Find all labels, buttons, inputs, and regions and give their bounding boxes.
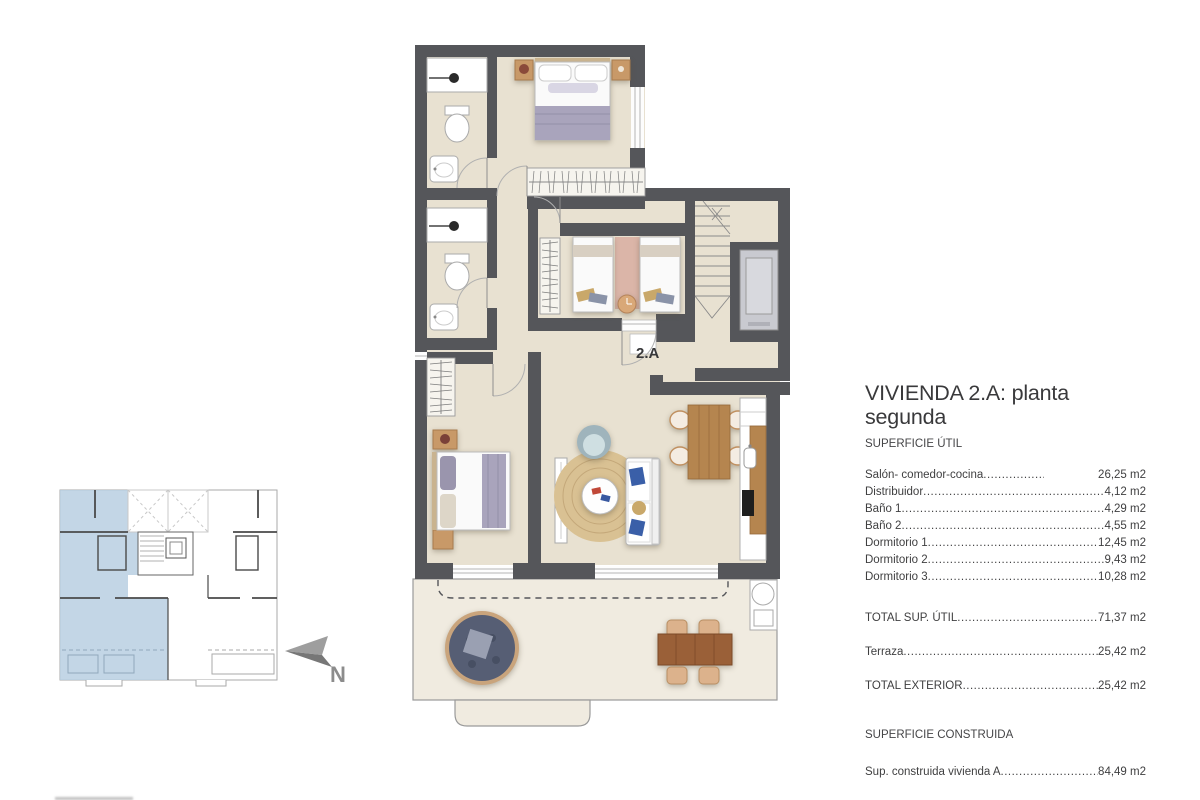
surface-row: Dormitorio 29,43 m2 bbox=[865, 552, 1146, 569]
nightstand bbox=[433, 530, 453, 549]
terrace bbox=[413, 579, 777, 726]
built-surface-row: Sup. construida vivienda A84,49 m2 bbox=[865, 764, 1146, 781]
total-useful-row: TOTAL SUP. ÚTIL71,37 m2 bbox=[865, 610, 1146, 627]
shower-head-icon bbox=[449, 221, 459, 231]
surface-row: Dormitorio 112,45 m2 bbox=[865, 535, 1146, 552]
wardrobe-bedroom-1 bbox=[427, 358, 455, 416]
surface-row: Salón- comedor-cocina26,25 m2 bbox=[865, 467, 1146, 484]
cooktop bbox=[742, 490, 754, 516]
terrace-daybed bbox=[445, 611, 519, 685]
total-exterior-row: TOTAL EXTERIOR25,42 m2 bbox=[865, 678, 1146, 695]
bed-headboard bbox=[432, 452, 437, 530]
surface-row: Baño 24,55 m2 bbox=[865, 518, 1146, 535]
toilet-1 bbox=[445, 114, 469, 142]
core-stairs-elevator bbox=[138, 532, 193, 575]
bed-blanket bbox=[482, 454, 506, 528]
kitchen-worktop bbox=[750, 426, 766, 534]
shower-head-icon bbox=[449, 73, 459, 83]
floorplan-page: 2.A bbox=[0, 0, 1200, 800]
kitchen bbox=[740, 398, 766, 560]
surface-row: Baño 14,29 m2 bbox=[865, 501, 1146, 518]
north-arrow: N bbox=[285, 636, 346, 687]
bed-headboard bbox=[535, 58, 610, 62]
wardrobe-twin bbox=[540, 238, 560, 314]
page-title: VIVIENDA 2.A: planta segunda bbox=[865, 381, 1146, 429]
surface-row: Distribuidor4,12 m2 bbox=[865, 484, 1146, 501]
useful-surface-heading: SUPERFICIE ÚTIL bbox=[865, 436, 1146, 453]
terrace-row: Terraza25,42 m2 bbox=[865, 644, 1146, 661]
kitchen-sink bbox=[744, 448, 756, 468]
key-plan: N bbox=[40, 470, 370, 710]
surface-row: Dormitorio 310,28 m2 bbox=[865, 569, 1146, 586]
north-label: N bbox=[330, 662, 346, 687]
coffee-table bbox=[582, 478, 618, 514]
built-surface-heading: SUPERFICIE CONSTRUIDA bbox=[865, 727, 1146, 744]
elevator bbox=[740, 250, 778, 330]
toilet-2 bbox=[445, 262, 469, 290]
surface-info-panel: VIVIENDA 2.A: planta segunda SUPERFICIE … bbox=[865, 381, 1146, 781]
terrace-bbq-unit bbox=[750, 580, 777, 630]
bed-blanket bbox=[535, 106, 610, 140]
unit-label: 2.A bbox=[636, 345, 660, 362]
main-floor-plan: 2.A bbox=[408, 38, 798, 738]
terrace-step bbox=[455, 700, 590, 726]
wardrobe-top-bedroom bbox=[527, 168, 645, 196]
